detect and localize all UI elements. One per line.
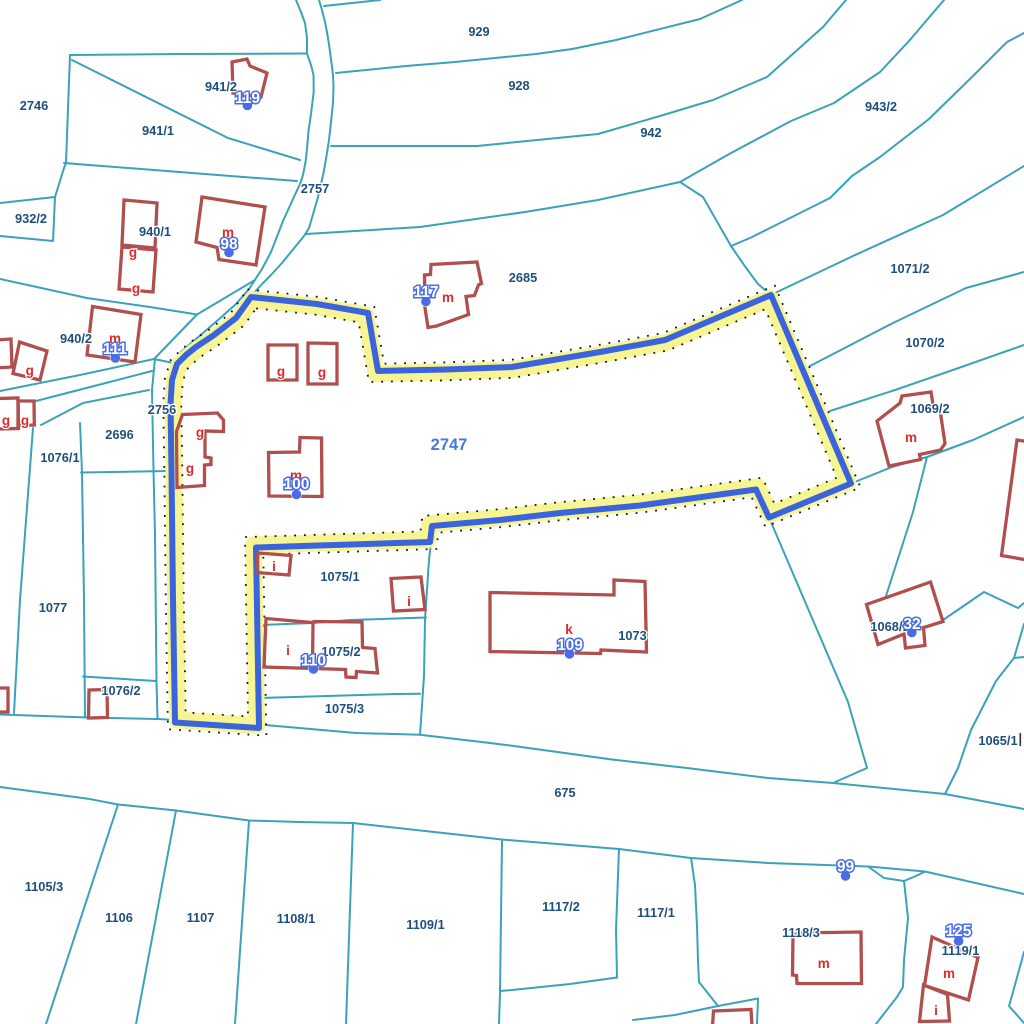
svg-text:1105/3: 1105/3 [25,879,63,894]
svg-text:g: g [2,413,10,428]
svg-text:g: g [26,363,34,378]
svg-text:g: g [318,365,326,380]
svg-text:i: i [934,1003,938,1018]
svg-text:1076/2: 1076/2 [101,683,140,698]
svg-text:1108/1: 1108/1 [277,911,315,926]
svg-text:2746: 2746 [20,98,48,113]
svg-text:1117/1: 1117/1 [637,905,675,920]
svg-text:1109/1: 1109/1 [406,917,444,932]
svg-text:98: 98 [220,236,238,253]
svg-text:100: 100 [284,476,310,493]
svg-text:932/2: 932/2 [15,211,47,226]
svg-text:110: 110 [301,653,326,670]
svg-text:943/2: 943/2 [865,99,897,114]
svg-text:119: 119 [235,90,260,107]
svg-text:2756: 2756 [148,402,176,417]
svg-text:1118/3: 1118/3 [782,925,820,940]
svg-text:111: 111 [103,341,128,358]
svg-text:i: i [286,643,290,658]
svg-text:125: 125 [946,923,972,940]
svg-text:940/1: 940/1 [139,224,171,239]
svg-text:g: g [196,425,204,440]
svg-text:1075/1: 1075/1 [320,569,359,584]
svg-text:g: g [129,245,137,260]
svg-text:941/2: 941/2 [205,79,237,94]
svg-text:g: g [132,281,140,296]
svg-text:1071/2: 1071/2 [890,261,929,276]
svg-text:2685: 2685 [509,270,537,285]
svg-text:940/2: 940/2 [60,331,92,346]
svg-text:675: 675 [554,785,575,800]
svg-text:929: 929 [468,24,489,39]
svg-text:g: g [186,461,194,476]
svg-text:1077: 1077 [39,600,67,615]
svg-text:109: 109 [557,637,583,654]
svg-text:1070/2: 1070/2 [905,335,944,350]
svg-text:1107: 1107 [187,910,215,925]
svg-text:1065/1: 1065/1 [978,733,1017,748]
svg-text:1075/2: 1075/2 [321,644,360,659]
svg-text:k: k [565,622,573,637]
svg-text:1075/3: 1075/3 [325,701,364,716]
svg-text:928: 928 [508,78,529,93]
svg-text:2747: 2747 [431,436,468,454]
svg-text:m: m [818,956,830,971]
svg-text:m: m [442,290,454,305]
svg-text:942: 942 [640,125,661,140]
svg-text:99: 99 [837,859,855,876]
svg-text:1117/2: 1117/2 [542,899,580,914]
svg-text:i: i [272,559,276,574]
svg-text:m: m [905,430,917,445]
svg-text:g: g [277,364,285,379]
svg-text:i: i [407,594,411,609]
svg-text:2757: 2757 [301,181,329,196]
svg-text:g: g [21,413,29,428]
svg-text:1073: 1073 [618,628,646,643]
svg-text:1069/2: 1069/2 [910,401,949,416]
svg-text:2696: 2696 [105,427,133,442]
svg-text:1076/1: 1076/1 [40,450,79,465]
svg-text:m: m [943,966,955,981]
svg-text:1106: 1106 [105,910,133,925]
svg-text:941/1: 941/1 [142,123,174,138]
svg-text:117: 117 [413,284,438,301]
svg-text:32: 32 [903,616,920,633]
